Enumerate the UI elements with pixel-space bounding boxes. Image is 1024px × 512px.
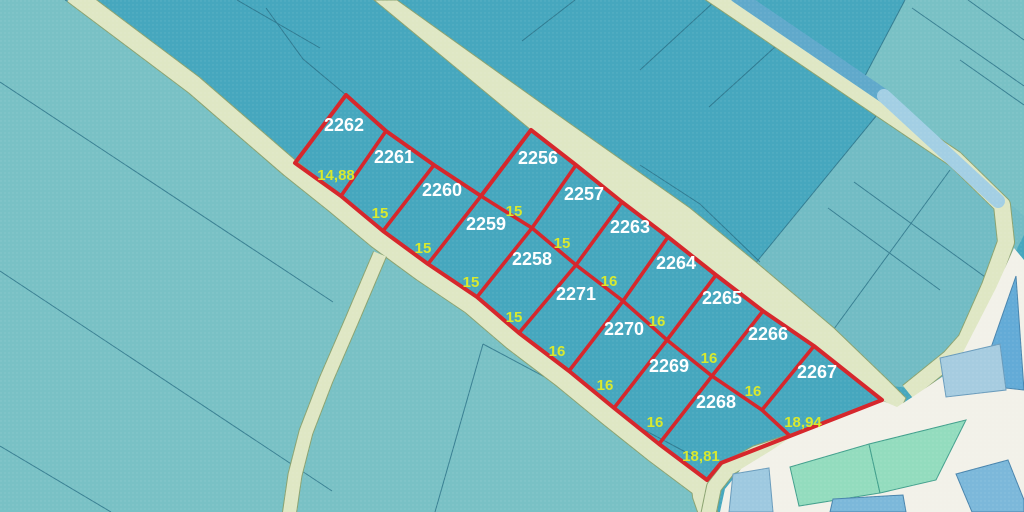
svg-text:15: 15	[506, 309, 523, 326]
svg-text:2258: 2258	[512, 249, 552, 269]
svg-text:2266: 2266	[748, 324, 788, 344]
svg-text:2260: 2260	[422, 180, 462, 200]
svg-text:15: 15	[506, 203, 523, 220]
svg-text:18,81: 18,81	[682, 448, 720, 465]
svg-text:15: 15	[554, 235, 571, 252]
svg-text:15: 15	[463, 274, 480, 291]
svg-text:2271: 2271	[556, 284, 596, 304]
svg-text:16: 16	[649, 313, 666, 330]
svg-text:16: 16	[601, 273, 618, 290]
svg-text:2268: 2268	[696, 392, 736, 412]
svg-text:16: 16	[745, 383, 762, 400]
svg-text:2257: 2257	[564, 184, 604, 204]
svg-text:14,88: 14,88	[317, 167, 355, 184]
svg-text:2265: 2265	[702, 288, 742, 308]
svg-text:2269: 2269	[649, 356, 689, 376]
svg-text:15: 15	[415, 240, 432, 257]
svg-text:2264: 2264	[656, 253, 696, 273]
svg-text:16: 16	[549, 343, 566, 360]
svg-text:2263: 2263	[610, 217, 650, 237]
svg-text:2261: 2261	[374, 147, 414, 167]
svg-text:2256: 2256	[518, 148, 558, 168]
svg-text:16: 16	[701, 350, 718, 367]
svg-text:2262: 2262	[324, 115, 364, 135]
svg-text:16: 16	[597, 377, 614, 394]
svg-text:18,94: 18,94	[784, 414, 822, 431]
svg-text:2267: 2267	[797, 362, 837, 382]
svg-text:2259: 2259	[466, 214, 506, 234]
svg-text:2270: 2270	[604, 319, 644, 339]
svg-text:15: 15	[372, 205, 389, 222]
svg-text:16: 16	[647, 414, 664, 431]
